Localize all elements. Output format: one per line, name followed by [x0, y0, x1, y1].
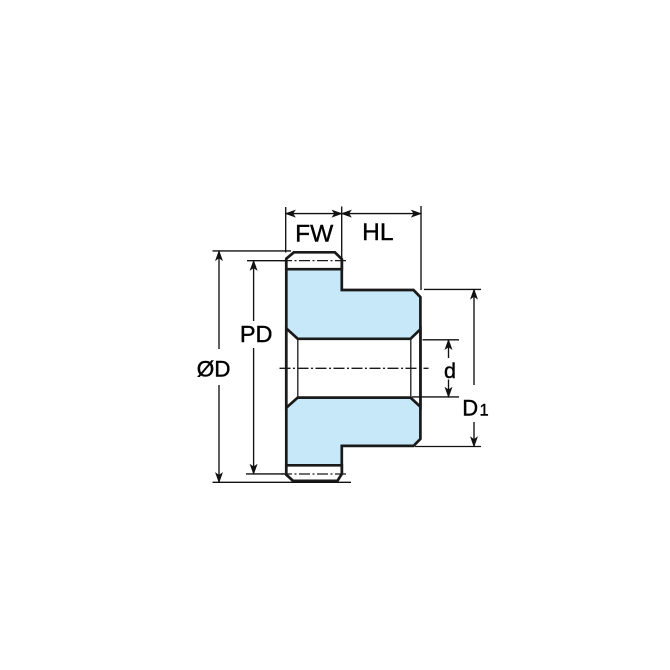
svg-text:PD: PD — [240, 321, 273, 347]
svg-text:ØD: ØD — [197, 357, 231, 382]
svg-text:D1: D1 — [462, 396, 488, 421]
svg-text:d: d — [444, 359, 456, 383]
svg-text:HL: HL — [362, 219, 393, 246]
svg-text:FW: FW — [295, 221, 334, 248]
